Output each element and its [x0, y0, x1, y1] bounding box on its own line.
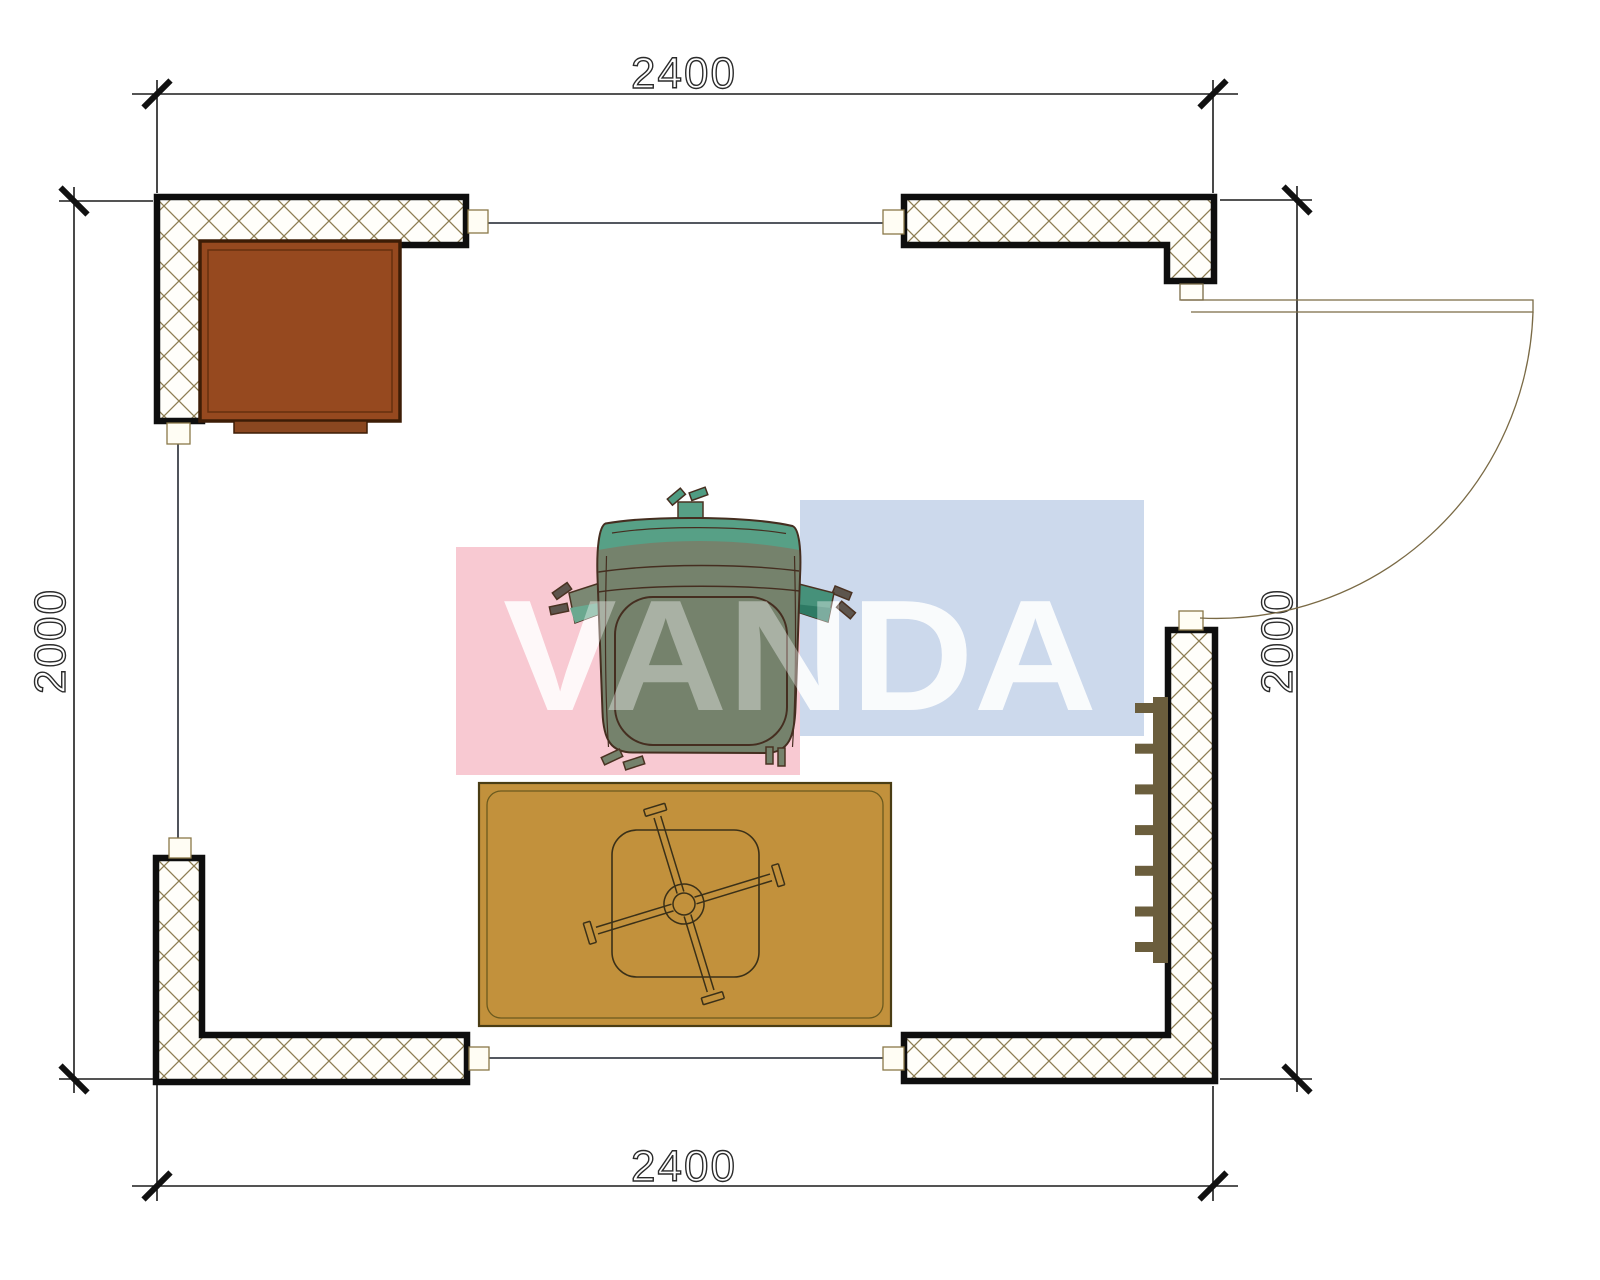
svg-text:2400: 2400 — [631, 1142, 737, 1191]
svg-text:2000: 2000 — [26, 588, 75, 694]
svg-text:2400: 2400 — [631, 49, 737, 98]
svg-text:VANDA: VANDA — [503, 568, 1097, 744]
svg-text:2000: 2000 — [1253, 588, 1302, 694]
